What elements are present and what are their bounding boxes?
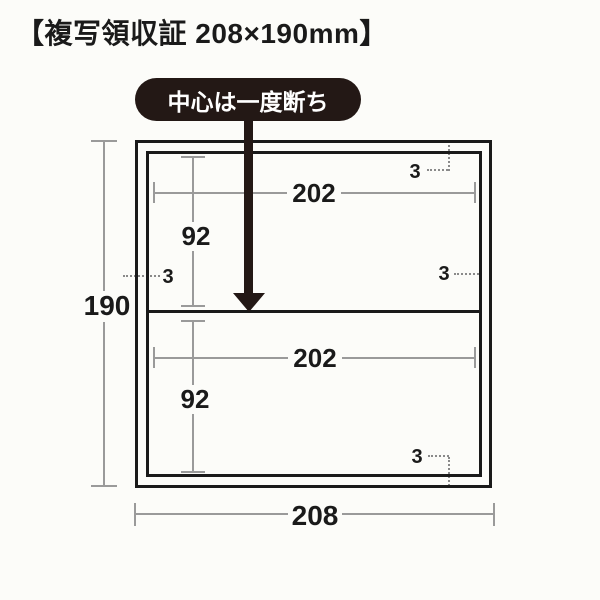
dim-inner-width-bottom-cap-left	[153, 347, 155, 368]
dim-inner-width-bottom-cap-right	[474, 347, 476, 368]
dim-half-height-bottom-cap-top	[181, 320, 205, 322]
callout-arrow-shaft	[244, 120, 253, 294]
callout-arrow-head-icon	[233, 293, 265, 312]
dim-height-label: 190	[80, 291, 134, 322]
dim-inner-width-top-label: 202	[287, 179, 341, 208]
page-title: 【複写領収証 208×190mm】	[16, 12, 388, 52]
spec-diagram-canvas: 【複写領収証 208×190mm】 190 208 202 92 202 92 …	[0, 0, 600, 600]
dim-inner-width-bottom-label: 202	[288, 344, 342, 373]
dim-width-label: 208	[288, 501, 342, 532]
dim-half-height-top-cap-top	[181, 156, 205, 158]
margin-mid-right-label: 3	[434, 264, 454, 284]
dim-half-height-bottom-label: 92	[175, 385, 215, 414]
dim-half-height-top-label: 92	[176, 222, 216, 251]
center-cut-line	[146, 310, 482, 313]
dim-width-cap-right	[493, 503, 495, 526]
margin-mid-left-label: 3	[158, 267, 178, 287]
dim-inner-width-top-cap-left	[153, 182, 155, 203]
margin-top-right-label: 3	[405, 162, 425, 182]
dim-half-height-top-cap-bottom	[181, 305, 205, 307]
margin-bottom-right-label: 3	[407, 447, 427, 467]
dim-height-cap-bottom	[91, 485, 117, 487]
dim-height-cap-top	[91, 140, 117, 142]
dim-width-cap-left	[134, 503, 136, 526]
center-cut-callout: 中心は一度断ち	[135, 78, 361, 121]
dim-inner-width-top-cap-right	[474, 182, 476, 203]
center-cut-callout-label: 中心は一度断ち	[168, 83, 329, 117]
dim-half-height-bottom-cap-bottom	[181, 471, 205, 473]
